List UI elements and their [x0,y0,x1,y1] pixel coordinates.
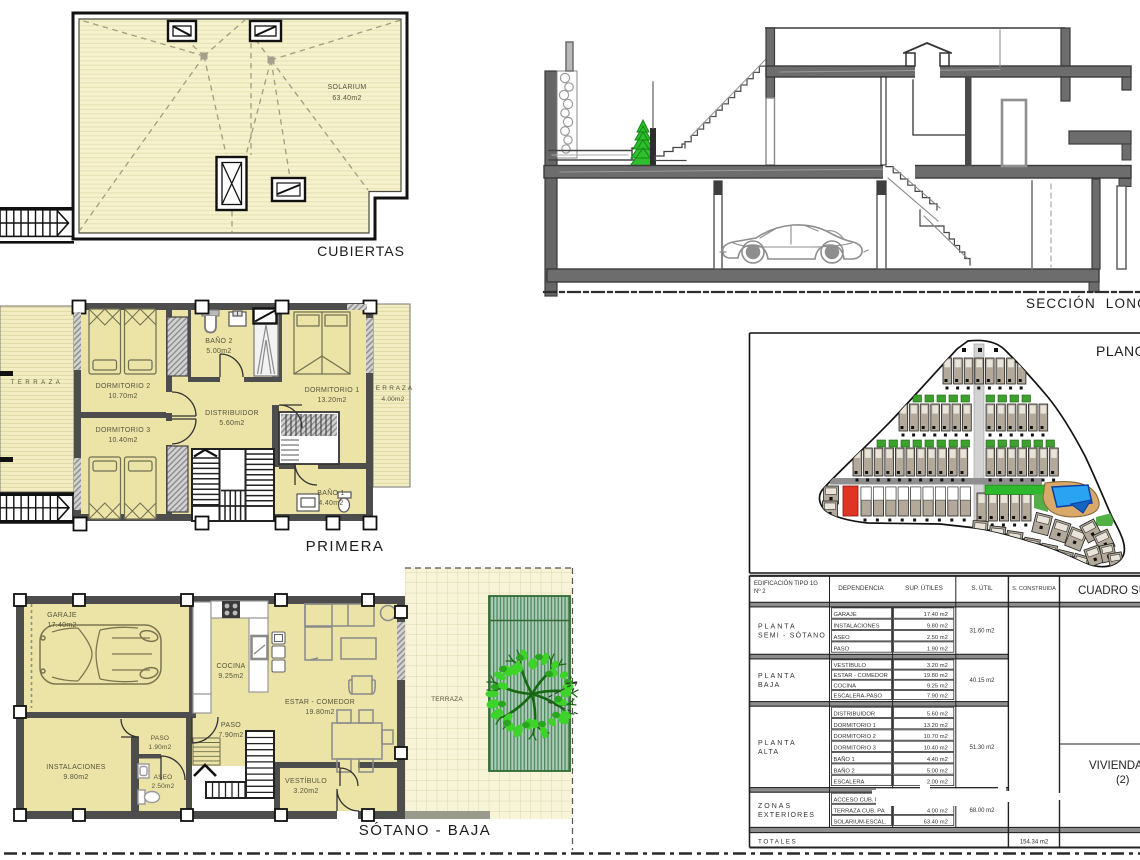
svg-text:40.15 m2: 40.15 m2 [969,678,995,684]
svg-text:13.20 m2: 13.20 m2 [924,723,948,729]
svg-text:INSTALACIONES: INSTALACIONES [834,624,880,630]
svg-text:DORMITORIO 3: DORMITORIO 3 [834,746,876,752]
svg-text:10.40m2: 10.40m2 [108,437,137,444]
svg-text:ESCALERA-PASO: ESCALERA-PASO [834,694,883,700]
svg-text:7.90m2: 7.90m2 [218,732,243,739]
svg-text:9.25 m2: 9.25 m2 [927,683,948,689]
svg-text:17.40 m2: 17.40 m2 [924,612,948,618]
svg-text:CUADRO SUPERF: CUADRO SUPERF [1078,585,1140,597]
svg-text:DORMITORIO 2: DORMITORIO 2 [834,734,876,740]
svg-text:13.20m2: 13.20m2 [317,397,346,404]
svg-text:SOLARIUM-ESCAL.: SOLARIUM-ESCAL. [834,819,887,825]
svg-text:2.50m2: 2.50m2 [152,783,175,790]
svg-text:VESTÍBULO: VESTÍBULO [285,776,327,785]
svg-text:PLANTA: PLANTA [758,624,797,631]
svg-text:DEPENDENCIA: DEPENDENCIA [838,585,884,592]
svg-text:T E R R A Z A: T E R R A Z A [370,385,413,392]
svg-text:ESTAR - COMEDOR: ESTAR - COMEDOR [285,699,355,706]
svg-text:4.00 m2: 4.00 m2 [927,808,948,814]
svg-text:BAÑO 1: BAÑO 1 [834,756,855,763]
svg-text:19.80m2: 19.80m2 [305,709,334,716]
svg-text:EDIFICACIÓN TIPO 1G: EDIFICACIÓN TIPO 1G [754,580,818,587]
svg-text:GARAJE: GARAJE [47,612,77,619]
svg-text:ALTA: ALTA [758,749,779,756]
svg-text:10.40 m2: 10.40 m2 [924,746,948,752]
svg-text:154.34 m2: 154.34 m2 [1020,840,1049,846]
svg-text:S. CONSTRUIDA: S. CONSTRUIDA [1012,586,1056,592]
svg-text:9.25m2: 9.25m2 [218,673,243,680]
svg-text:ESCALERA: ESCALERA [834,780,865,786]
svg-text:DORMITORIO 2: DORMITORIO 2 [96,383,151,390]
svg-text:PLANTA: PLANTA [758,673,797,680]
svg-text:DISTRIBUIDOR: DISTRIBUIDOR [834,712,876,718]
svg-text:SOLARIUM: SOLARIUM [328,84,367,91]
svg-text:4.00m2: 4.00m2 [382,396,405,403]
svg-text:3.20m2: 3.20m2 [293,788,318,795]
svg-text:ASEO: ASEO [154,774,173,781]
svg-text:51.30 m2: 51.30 m2 [969,745,995,751]
svg-text:TERRAZA CUB. PA: TERRAZA CUB. PA [834,808,885,814]
svg-text:5.60m2: 5.60m2 [219,420,244,427]
svg-text:2.50 m2: 2.50 m2 [927,635,948,641]
svg-text:10.70m2: 10.70m2 [108,393,137,400]
svg-text:PRIMERA: PRIMERA [306,538,385,555]
svg-text:VESTÍBULO: VESTÍBULO [834,662,867,669]
svg-text:DISTRIBUIDOR: DISTRIBUIDOR [205,410,259,417]
svg-text:4.40 m2: 4.40 m2 [927,757,948,763]
svg-text:BAÑO 1: BAÑO 1 [317,488,344,497]
svg-text:SÓTANO - BAJA: SÓTANO - BAJA [359,822,492,839]
svg-text:5.60 m2: 5.60 m2 [927,712,948,718]
svg-text:9.80m2: 9.80m2 [63,774,88,781]
svg-text:1.90 m2: 1.90 m2 [927,646,948,652]
svg-text:ZONAS: ZONAS [758,803,792,810]
svg-text:COCINA: COCINA [216,663,245,670]
svg-text:Nº 2: Nº 2 [754,588,766,595]
svg-text:19.80 m2: 19.80 m2 [924,673,948,679]
svg-text:GARAJE: GARAJE [834,612,857,618]
svg-text:3.20 m2: 3.20 m2 [927,663,948,669]
svg-text:10.70 m2: 10.70 m2 [924,734,948,740]
svg-text:PASO: PASO [151,735,169,742]
svg-text:BAÑO 2: BAÑO 2 [205,336,232,345]
svg-text:TOTALES: TOTALES [758,839,797,846]
svg-text:1.90m2: 1.90m2 [149,744,172,751]
svg-text:68.00 m2: 68.00 m2 [969,808,995,814]
svg-text:EXTERIORES: EXTERIORES [758,812,815,819]
svg-text:BAÑO 2: BAÑO 2 [834,767,855,774]
svg-text:SUP. ÚTILES: SUP. ÚTILES [905,583,943,592]
svg-text:SEMI - SÓTANO: SEMI - SÓTANO [758,631,826,640]
svg-text:VIVIENDA TI: VIVIENDA TI [1089,760,1140,772]
svg-text:31.60 m2: 31.60 m2 [969,629,995,635]
svg-text:7.90 m2: 7.90 m2 [927,694,948,700]
svg-text:DORMITORIO 3: DORMITORIO 3 [96,427,151,434]
svg-text:63.40 m2: 63.40 m2 [924,819,948,825]
svg-text:PASO: PASO [834,646,850,652]
svg-text:BAJA: BAJA [758,682,780,689]
svg-text:PLANO GENERAL: PLANO GENERAL [1096,343,1140,359]
svg-text:DORMITORIO 1: DORMITORIO 1 [305,387,360,394]
svg-text:TERRAZA: TERRAZA [431,696,463,703]
svg-text:63.40m2: 63.40m2 [332,95,361,102]
svg-text:CUBIERTAS: CUBIERTAS [317,243,405,259]
svg-text:(2): (2) [1116,774,1129,786]
svg-text:ASEO: ASEO [834,635,851,641]
svg-text:5.00m2: 5.00m2 [206,348,231,355]
svg-text:S. ÚTIL: S. ÚTIL [971,583,993,592]
svg-text:9.80 m2: 9.80 m2 [927,624,948,630]
svg-text:4.40m2: 4.40m2 [318,500,343,507]
svg-text:SECCIÓN LONGITUDINAL: SECCIÓN LONGITUDINAL [1026,296,1140,311]
svg-text:2.00 m2: 2.00 m2 [927,780,948,786]
svg-text:TERRAZA: TERRAZA [11,380,64,386]
svg-text:ESTAR - COMEDOR: ESTAR - COMEDOR [834,673,888,679]
svg-text:INSTALACIONES: INSTALACIONES [46,764,105,771]
svg-text:COCINA: COCINA [834,683,857,689]
svg-text:DORMITORIO 1: DORMITORIO 1 [834,723,876,729]
svg-text:5.00 m2: 5.00 m2 [927,768,948,774]
svg-text:ACCESO CUB. P.: ACCESO CUB. P. [834,797,881,803]
svg-text:PASO: PASO [221,722,241,729]
svg-text:17.40m2: 17.40m2 [47,622,76,629]
svg-text:PLANTA: PLANTA [758,740,797,747]
